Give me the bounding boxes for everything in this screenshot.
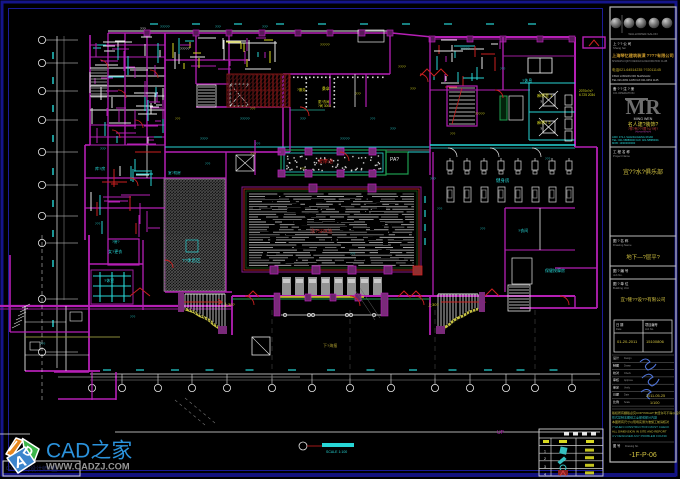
svg-text:Date: Date [624,394,630,397]
svg-text:2: 2 [544,457,546,461]
svg-text:4 V DESIGNER ANY PROBLEM FOUND: 4 V DESIGNER ANY PROBLEM FOUND [612,434,668,438]
svg-text:Drawn: Drawn [624,365,632,368]
svg-text:日期: 日期 [613,392,619,397]
svg-text:Design: Design [624,357,632,360]
svg-text:按摩池: 按摩池 [318,158,333,165]
svg-text:???: ??? [95,222,101,226]
svg-text:版权所有翻版必究COPYRIGHT:未经许可不得以任何: 版权所有翻版必究COPYRIGHT:未经许可不得以任何 [612,410,680,415]
svg-text:Check: Check [624,372,632,375]
svg-text:???: ??? [410,87,416,91]
svg-text:7 WHEN CONSTRUCTION MUST CHECK: 7 WHEN CONSTRUCTION MUST CHECK [612,425,669,429]
svg-text:???: ??? [545,157,551,161]
svg-text:?????: ????? [240,117,250,121]
svg-text:室?机房: 室?机房 [168,170,181,175]
svg-text:???: ??? [430,177,436,181]
svg-text:图 号: 图 号 [613,443,620,448]
svg-text:宜??水?俱乐部: 宜??水?俱乐部 [623,168,663,176]
svg-text:Job No.: Job No. [613,273,623,277]
svg-text:麻将? 2: 麻将? 2 [537,119,551,125]
svg-text:???: ??? [40,342,46,346]
svg-text:下?海报: 下?海报 [323,342,337,348]
svg-text:9 BLD LONGWU RD SHANGHAI: 9 BLD LONGWU RD SHANGHAI [612,74,651,78]
svg-text:?????: ????? [180,47,190,51]
svg-text:-1F-P-06: -1F-P-06 [629,452,657,459]
svg-text:日 期: 日 期 [616,322,623,327]
svg-text:UP: UP [497,430,505,436]
svg-text:2011-05-25: 2011-05-25 [646,394,665,398]
svg-text:项目编号: 项目编号 [645,322,658,327]
svg-text:审定: 审定 [613,384,619,389]
svg-text:健身房: 健身房 [496,177,510,184]
svg-text:MOB: 13900000000: MOB: 13900000000 [612,141,636,145]
svg-text:?服务: ?服务 [297,87,306,92]
svg-text:???: ??? [255,142,261,146]
svg-text:泳?SPA池: 泳?SPA池 [310,228,332,235]
svg-text:ALL DIMENSION IN SITE AND REPO: ALL DIMENSION IN SITE AND REPORT [612,429,667,433]
svg-text:电话021-64514235 ??2011145: 电话021-64514235 ??2011145 [612,67,661,72]
svg-text:6.725 2034: 6.725 2034 [579,93,595,97]
svg-text:本图所有尺寸以现场实测为准施工前请核对: 本图所有尺寸以现场实测为准施工前请核对 [612,419,669,424]
svg-text:设计: 设计 [613,355,619,360]
svg-text:形式复制本图纸之全部或部分内容: 形式复制本图纸之全部或部分内容 [612,415,657,420]
svg-text:上海琴忆建筑装潢 ????有限公司: 上海琴忆建筑装潢 ????有限公司 [612,52,674,59]
svg-text:01-20-2011: 01-20-2011 [617,339,638,344]
svg-text:15100806: 15100806 [646,339,665,344]
svg-text:SHANGHAI QINYI DESIGN & DECORA: SHANGHAI QINYI DESIGN & DECORATION CLUB [612,60,668,63]
svg-text:???: ??? [300,117,306,121]
svg-text:保健按摩房: 保健按摩房 [545,267,565,273]
svg-text:???: ??? [370,117,376,121]
svg-text:???: ??? [437,207,443,211]
svg-text:?????: ????? [160,25,170,29]
svg-text:???: ??? [250,107,256,111]
svg-text:???: ??? [390,127,396,131]
svg-text:Approve: Approve [624,379,634,382]
svg-text:地下—?层平?: 地下—?层平? [626,253,660,261]
svg-text:???: ??? [355,92,361,96]
svg-text:?间 3004: ?间 3004 [318,103,331,108]
svg-text:MING WEN: MING WEN [634,117,653,121]
svg-text:Verify: Verify [624,386,631,389]
svg-text:Scale: Scale [624,401,631,404]
svg-text:WALLPAPER-SALON: WALLPAPER-SALON [628,32,657,36]
svg-text:CAD之家: CAD之家 [46,440,132,463]
svg-text:????: ???? [398,65,406,69]
svg-text:Date: Date [616,327,622,331]
svg-text:???: ??? [300,167,306,171]
svg-text:Drawing No.: Drawing No. [625,445,639,448]
svg-text:???: ??? [480,227,486,231]
svg-text:1: 1 [544,450,546,454]
svg-text:?休室: ?休室 [104,277,114,283]
svg-text:???: ??? [500,67,506,71]
svg-text:Job No.: Job No. [645,327,654,331]
svg-text:???: ??? [130,315,136,319]
svg-text:???: ??? [205,162,211,166]
svg-text:?????: ????? [475,112,485,116]
svg-text:??休息区: ??休息区 [182,257,201,264]
svg-text:比例: 比例 [613,399,619,404]
svg-text:TEL 021-6451 1235 FAX 021-6451: TEL 021-6451 1235 FAX 021-6451 1145 [612,78,659,82]
svg-text:???: ??? [250,152,256,156]
svg-text:?????: ????? [320,43,330,47]
svg-text:审核: 审核 [613,377,619,382]
svg-text:校对: 校对 [613,370,619,375]
svg-text:?????: ????? [460,47,470,51]
svg-text:???: ??? [350,252,356,256]
svg-text:PA?: PA? [390,157,399,163]
svg-text:???: ??? [100,147,106,151]
svg-text:????: ???? [200,137,208,141]
svg-text:SCALE 1:100: SCALE 1:100 [326,450,347,454]
svg-text:???: ??? [450,132,456,136]
svg-text:Shang hai: Shang hai [613,46,626,50]
svg-text:制图: 制图 [613,363,619,368]
svg-text:麻将室 1: 麻将室 1 [537,92,553,98]
svg-text:1/100: 1/100 [650,401,660,405]
svg-text:???: ??? [175,117,181,121]
svg-text:女?更衣: 女?更衣 [108,248,122,254]
svg-text:库?房: 库?房 [95,165,105,171]
svg-text:Project Name: Project Name [613,154,630,158]
svg-text:Drawing Name: Drawing Name [613,243,632,247]
svg-text:?房?: ?房? [112,239,119,244]
svg-text:上30?: 上30? [428,301,439,307]
svg-text:???????????: ??????????? [635,130,651,134]
svg-text:4: 4 [544,472,546,476]
svg-text:?????: ????? [340,137,350,141]
svg-text:Building Unit: Building Unit [613,286,629,290]
svg-text:???: ??? [215,25,221,29]
svg-text:WWW.CADZJ.COM: WWW.CADZJ.COM [46,462,130,472]
svg-text:3: 3 [544,465,546,469]
svg-text:???: ??? [262,25,268,29]
svg-text:?休息: ?休息 [522,77,532,83]
svg-text:???: ??? [140,27,146,31]
svg-text:上30?: 上30? [224,301,235,307]
svg-text:宜?隆??设??有限公司: 宜?隆??设??有限公司 [621,296,666,303]
svg-text:?衣间: ?衣间 [518,227,528,233]
svg-text:桑拿: 桑拿 [322,86,330,91]
